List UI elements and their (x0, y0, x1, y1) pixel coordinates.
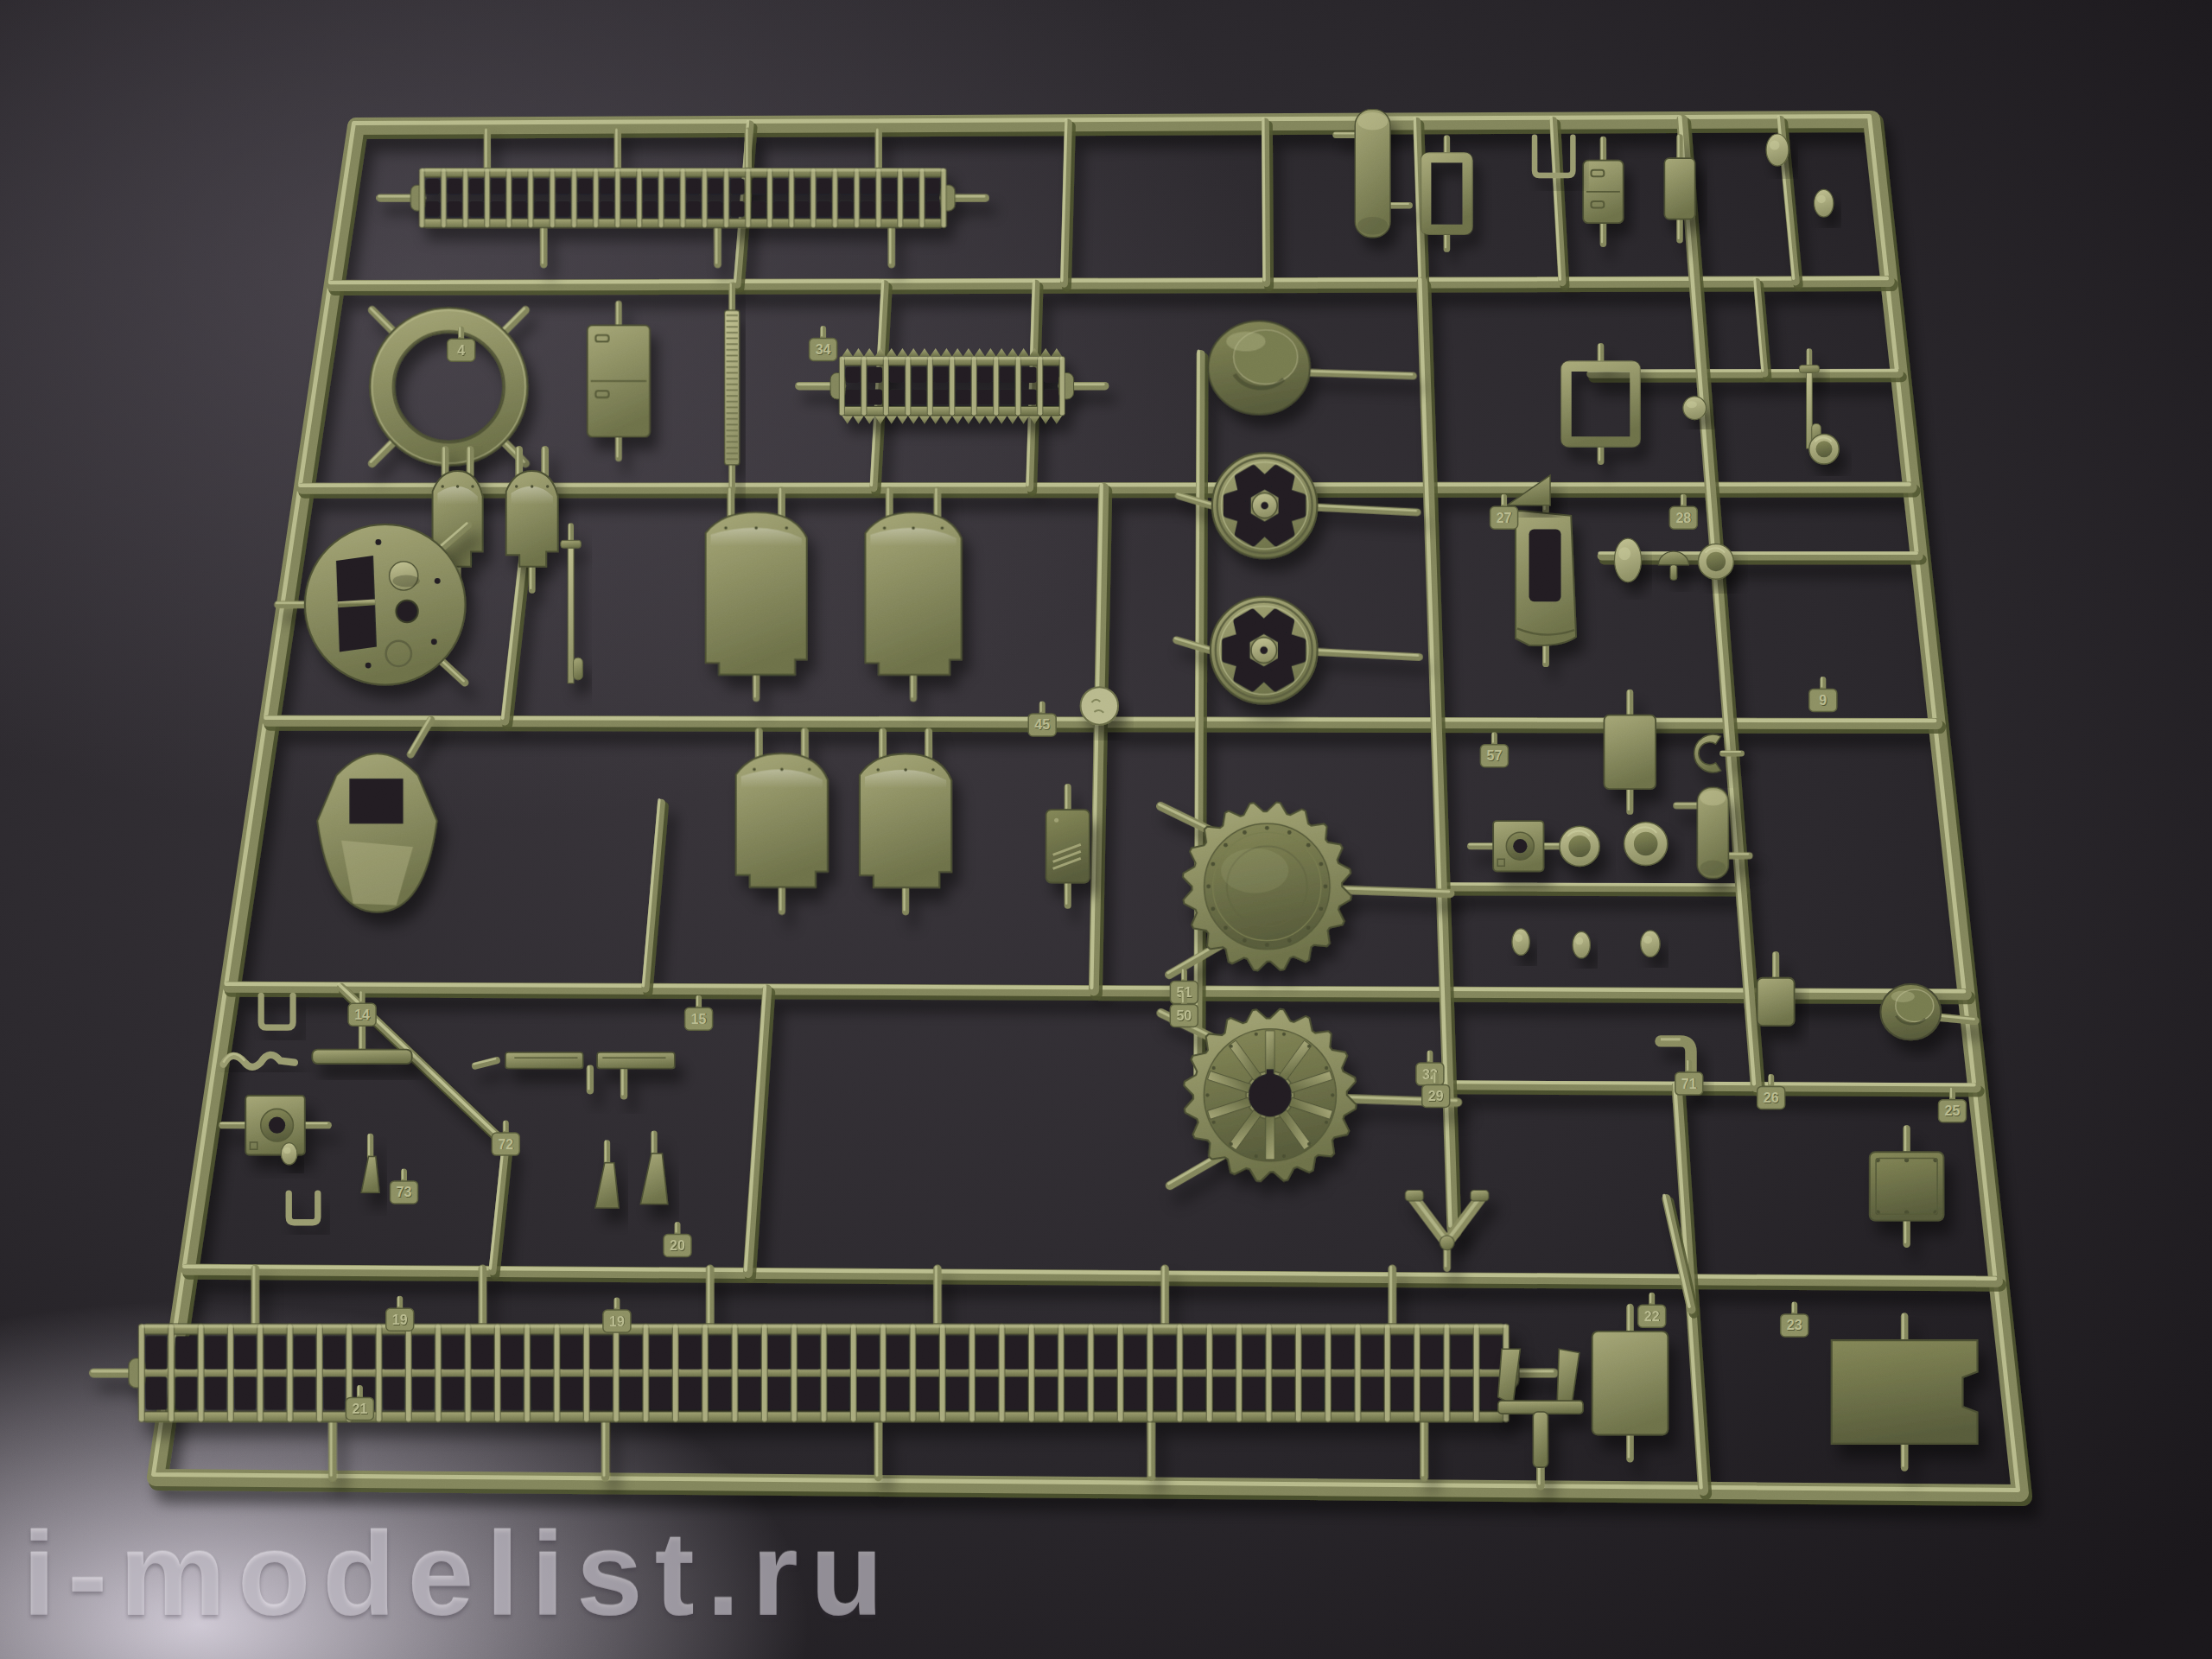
watermark-text: i-modelist.ru (22, 1505, 895, 1643)
film-grain-overlay (0, 0, 2212, 1659)
sprue-photo-svg: 7272202015151919191921217373141432322929… (0, 0, 2212, 1659)
sprue-photo: 7272202015151919191921217373141432322929… (0, 0, 2212, 1659)
